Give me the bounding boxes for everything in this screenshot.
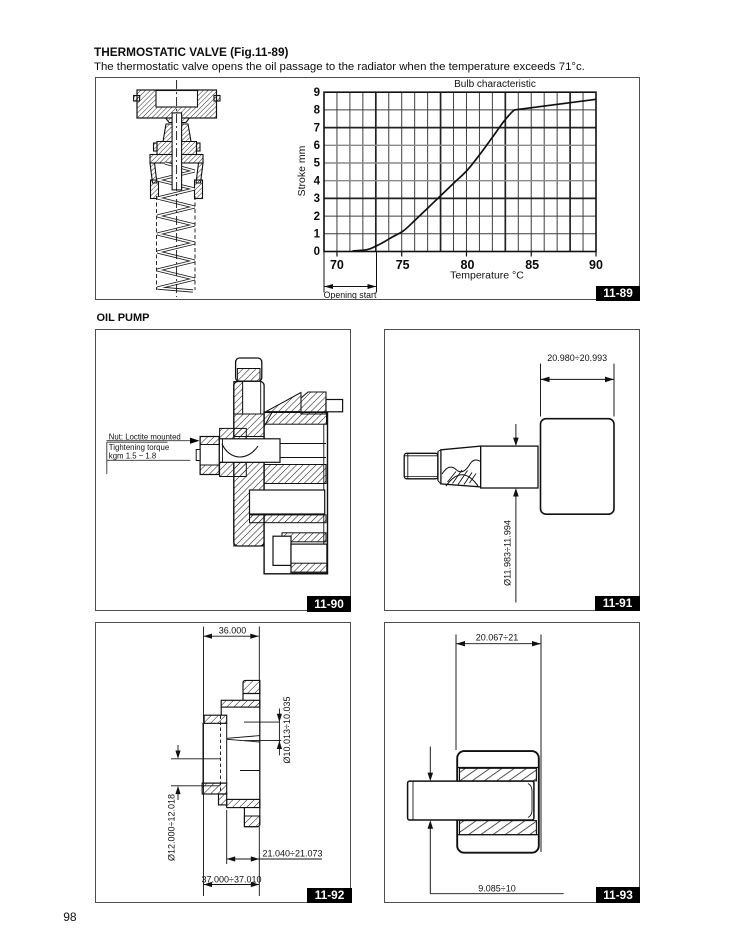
svg-text:36.000: 36.000 [219,625,247,635]
svg-text:5: 5 [314,158,321,170]
svg-text:Temperature °C: Temperature °C [450,270,524,282]
svg-text:Stroke mm: Stroke mm [296,145,308,196]
svg-text:1: 1 [314,229,321,241]
svg-text:90: 90 [589,258,603,272]
svg-text:37.000÷37.010: 37.000÷37.010 [202,874,262,884]
svg-text:2: 2 [314,211,320,223]
svg-text:kgm 1.5 ~ 1.8: kgm 1.5 ~ 1.8 [109,451,156,460]
svg-text:Ø11.983÷11.994: Ø11.983÷11.994 [503,520,513,586]
svg-text:9.085÷10: 9.085÷10 [478,883,515,893]
svg-text:7: 7 [314,122,320,134]
svg-text:20.980÷20.993: 20.980÷20.993 [547,353,607,363]
svg-text:85: 85 [525,258,539,272]
svg-text:70: 70 [330,258,344,272]
svg-text:Bulb characteristic: Bulb characteristic [454,79,536,90]
svg-text:21.040÷21.073: 21.040÷21.073 [263,849,323,859]
svg-text:Opening start: Opening start [324,290,377,299]
svg-text:Nut: Loctite mounted: Nut: Loctite mounted [109,432,181,441]
svg-text:9: 9 [314,87,320,99]
svg-text:Ø12.000÷12.018: Ø12.000÷12.018 [167,794,177,861]
svg-text:8: 8 [314,105,321,117]
svg-text:3: 3 [314,193,320,205]
svg-text:Ø10.013÷10.035: Ø10.013÷10.035 [282,697,292,764]
svg-text:6: 6 [314,140,320,152]
svg-text:20.067÷21: 20.067÷21 [476,632,518,642]
svg-text:4: 4 [314,175,321,187]
svg-text:75: 75 [396,258,410,272]
svg-text:0: 0 [314,246,320,258]
